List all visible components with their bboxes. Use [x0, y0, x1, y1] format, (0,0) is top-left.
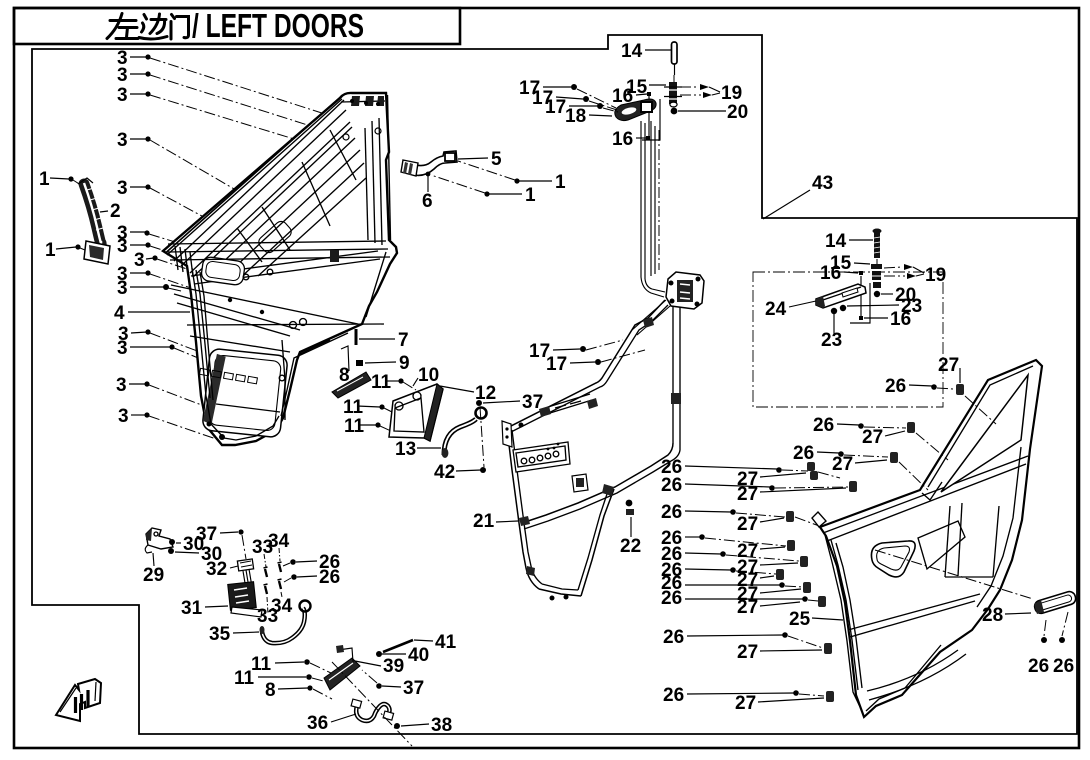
svg-text:16: 16	[820, 263, 841, 284]
svg-text:20: 20	[727, 102, 748, 123]
svg-text:3: 3	[117, 85, 128, 106]
svg-text:3: 3	[117, 178, 128, 199]
svg-text:3: 3	[117, 278, 128, 299]
svg-text:11: 11	[344, 416, 365, 437]
svg-text:42: 42	[434, 462, 455, 483]
svg-text:13: 13	[395, 439, 416, 460]
svg-text:6: 6	[422, 191, 433, 212]
svg-text:37: 37	[403, 678, 424, 699]
svg-text:31: 31	[181, 598, 203, 619]
svg-text:26: 26	[661, 502, 682, 523]
svg-text:25: 25	[789, 609, 811, 630]
svg-text:2: 2	[110, 201, 121, 222]
svg-text:11: 11	[343, 397, 364, 418]
svg-text:3: 3	[117, 130, 128, 151]
svg-text:27: 27	[832, 454, 853, 475]
svg-text:3: 3	[117, 236, 128, 257]
svg-text:23: 23	[821, 330, 842, 351]
svg-text:19: 19	[925, 265, 946, 286]
svg-text:27: 27	[938, 355, 959, 376]
svg-text:43: 43	[812, 173, 833, 194]
svg-text:11: 11	[234, 668, 255, 689]
svg-text:35: 35	[209, 624, 231, 645]
svg-text:/ LEFT DOORS: / LEFT DOORS	[192, 7, 364, 44]
svg-text:41: 41	[435, 632, 457, 653]
svg-text:39: 39	[383, 656, 404, 677]
svg-text:38: 38	[431, 715, 452, 736]
svg-text:17: 17	[546, 354, 567, 375]
svg-text:1: 1	[525, 185, 536, 206]
svg-text:23: 23	[901, 296, 922, 317]
svg-text:1: 1	[39, 169, 50, 190]
svg-text:26: 26	[1053, 656, 1074, 677]
svg-text:8: 8	[265, 680, 276, 701]
svg-text:22: 22	[620, 536, 641, 557]
svg-text:9: 9	[399, 353, 410, 374]
svg-text:26: 26	[793, 443, 814, 464]
svg-text:26: 26	[1028, 656, 1049, 677]
svg-text:26: 26	[663, 685, 684, 706]
svg-text:1: 1	[45, 240, 56, 261]
svg-text:16: 16	[612, 129, 633, 150]
svg-text:11: 11	[371, 372, 392, 393]
svg-text:7: 7	[398, 330, 409, 351]
svg-text:26: 26	[813, 415, 834, 436]
svg-text:34: 34	[271, 596, 293, 617]
svg-text:14: 14	[621, 41, 643, 62]
svg-text:10: 10	[418, 365, 439, 386]
svg-text:26: 26	[319, 567, 340, 588]
svg-text:3: 3	[116, 375, 127, 396]
svg-text:14: 14	[825, 231, 847, 252]
svg-text:1: 1	[555, 172, 566, 193]
svg-text:29: 29	[143, 565, 164, 586]
svg-text:32: 32	[206, 559, 227, 580]
svg-text:3: 3	[117, 65, 128, 86]
svg-text:5: 5	[491, 149, 502, 170]
svg-text:26: 26	[663, 627, 684, 648]
svg-text:17: 17	[545, 97, 566, 118]
svg-text:26: 26	[661, 475, 682, 496]
svg-text:27: 27	[737, 514, 758, 535]
svg-text:19: 19	[721, 83, 742, 104]
svg-text:26: 26	[885, 376, 906, 397]
svg-text:27: 27	[737, 597, 758, 618]
svg-text:3: 3	[118, 406, 129, 427]
svg-text:27: 27	[737, 484, 758, 505]
svg-text:27: 27	[862, 427, 883, 448]
svg-text:40: 40	[408, 645, 429, 666]
svg-text:4: 4	[114, 303, 125, 324]
svg-text:27: 27	[735, 693, 756, 714]
svg-text:26: 26	[661, 588, 682, 609]
svg-text:36: 36	[307, 713, 328, 734]
svg-text:24: 24	[765, 299, 787, 320]
svg-text:18: 18	[565, 106, 586, 127]
svg-text:28: 28	[982, 605, 1003, 626]
svg-text:27: 27	[737, 642, 758, 663]
svg-text:21: 21	[473, 511, 495, 532]
svg-text:3: 3	[134, 250, 145, 271]
svg-text:37: 37	[196, 524, 217, 545]
svg-text:3: 3	[117, 338, 128, 359]
